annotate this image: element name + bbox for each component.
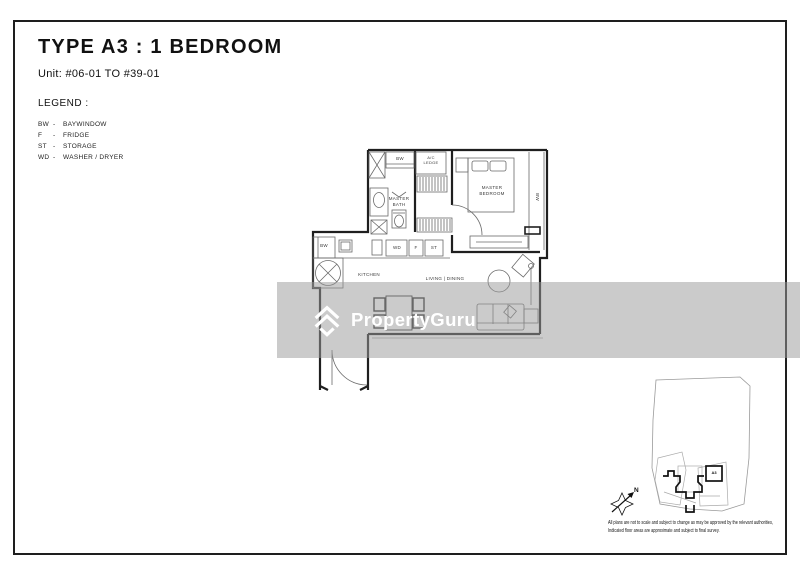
label-kitchen: KITCHEN	[358, 272, 380, 278]
label-living-dining: LIVING | DINING	[426, 276, 465, 282]
site-unit-marker: A3	[711, 470, 716, 475]
legend-item-bw: BW - BAYWINDOW	[38, 121, 107, 128]
north-arrow-icon	[611, 492, 634, 515]
unit-range: Unit: #06-01 TO #39-01	[38, 68, 160, 80]
label-fridge: F	[414, 245, 417, 251]
legend-label: FRIDGE	[63, 132, 89, 139]
legend-label: WASHER / DRYER	[63, 154, 124, 161]
north-label: N	[634, 487, 639, 494]
disclaimer-line2: Indicated floor areas are approximate an…	[608, 527, 773, 535]
legend-separator: -	[53, 121, 63, 128]
legend-separator: -	[53, 132, 63, 139]
label-baywindow-top: BW	[396, 156, 404, 162]
legend-abbr: ST	[38, 143, 53, 150]
floorplan-page: TYPE A3 : 1 BEDROOM Unit: #06-01 TO #39-…	[0, 0, 800, 565]
label-master-bedroom: MASTER BEDROOM	[476, 185, 508, 197]
label-baywindow-right: BW	[534, 193, 540, 201]
legend-item-st: ST - STORAGE	[38, 143, 97, 150]
legend-label: BAYWINDOW	[63, 121, 107, 128]
page-title: TYPE A3 : 1 BEDROOM	[38, 36, 282, 59]
label-master-bath: MASTER BATH	[389, 196, 410, 208]
legend-item-f: F - FRIDGE	[38, 132, 89, 139]
disclaimer-text: All plans are not to scale and subject t…	[608, 519, 773, 535]
disclaimer-line1: All plans are not to scale and subject t…	[608, 519, 773, 527]
label-baywindow-kitchen: BW	[320, 243, 328, 249]
legend-separator: -	[53, 154, 63, 161]
label-ac-ledge: A/C LEDGE	[423, 155, 440, 165]
legend-label: STORAGE	[63, 143, 97, 150]
label-storage: ST	[431, 245, 437, 251]
legend-abbr: WD	[38, 154, 53, 161]
legend-heading: LEGEND :	[38, 98, 89, 109]
site-plan-map	[605, 374, 788, 520]
floor-plan-drawing	[300, 140, 565, 395]
label-washer-dryer: WD	[393, 245, 401, 251]
legend-separator: -	[53, 143, 63, 150]
legend-item-wd: WD - WASHER / DRYER	[38, 154, 124, 161]
legend-abbr: F	[38, 132, 53, 139]
legend-abbr: BW	[38, 121, 53, 128]
